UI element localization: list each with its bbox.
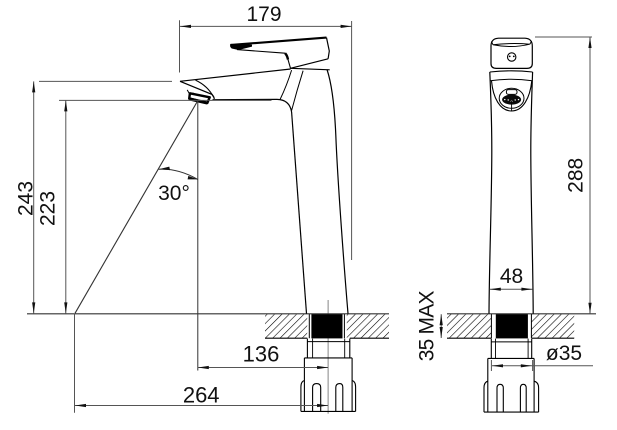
svg-text:ø35: ø35: [546, 342, 582, 365]
svg-text:264: 264: [183, 382, 220, 407]
svg-text:136: 136: [243, 342, 280, 367]
svg-text:288: 288: [565, 158, 588, 193]
svg-text:30°: 30°: [158, 182, 190, 205]
svg-text:179: 179: [246, 3, 281, 26]
svg-text:35 MAX: 35 MAX: [416, 291, 439, 362]
svg-text:48: 48: [500, 265, 523, 288]
svg-text:243: 243: [14, 181, 37, 216]
svg-text:223: 223: [37, 191, 60, 226]
